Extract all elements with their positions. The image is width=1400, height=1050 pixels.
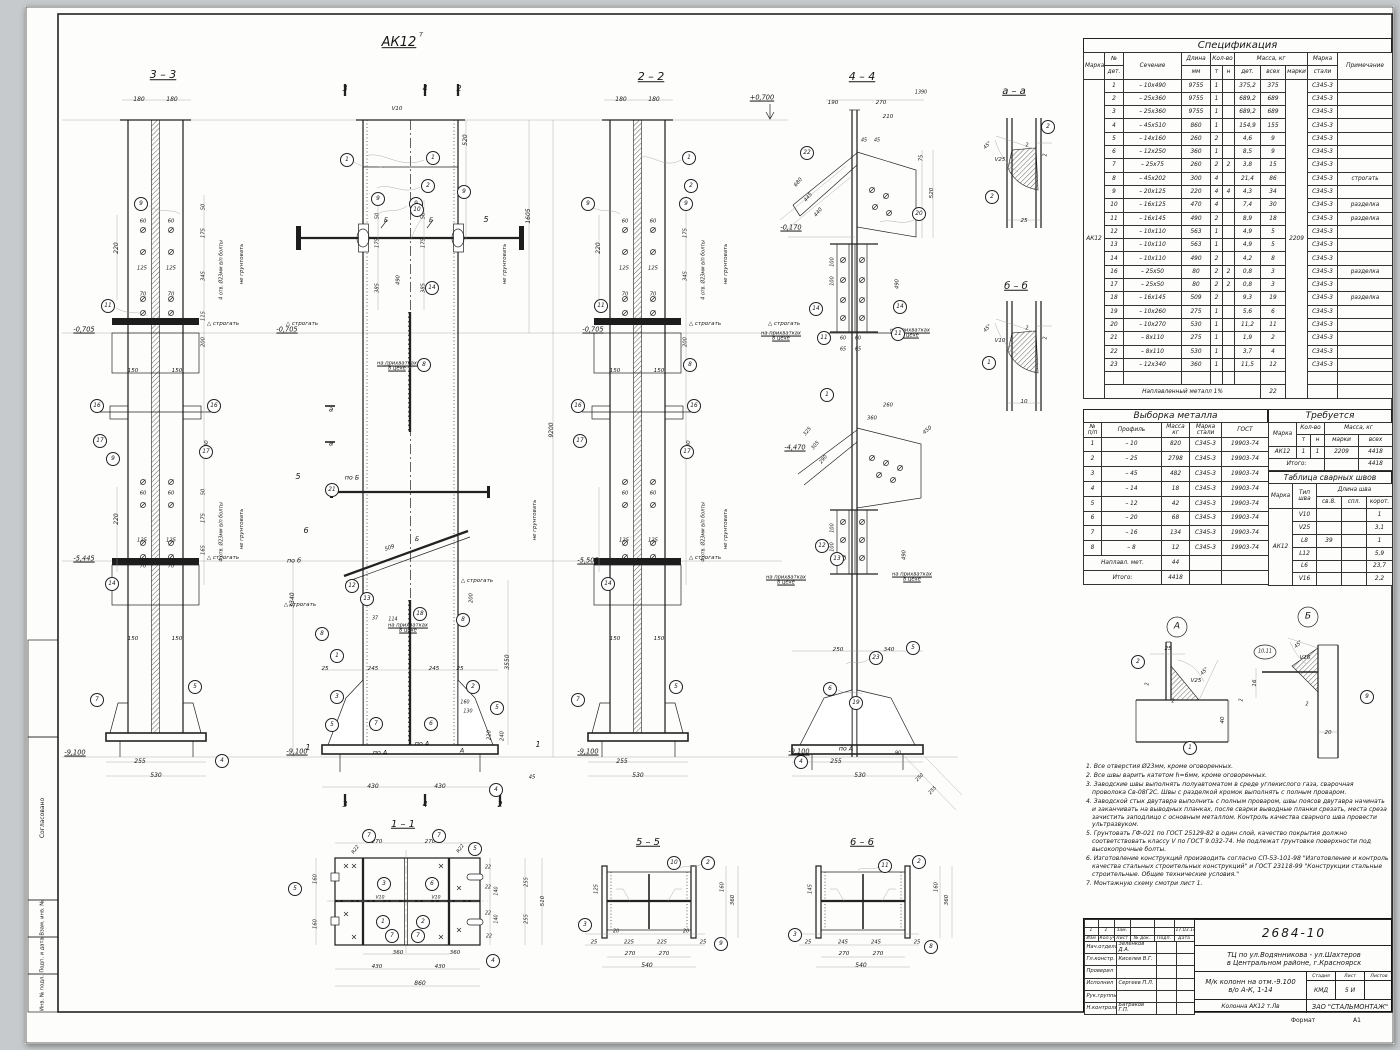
table-cell: – 14 [1102, 481, 1162, 496]
table-cell: Итого: [1269, 458, 1325, 470]
table-cell: 5,9 [1367, 547, 1393, 560]
table-cell: 8,9 [1235, 212, 1261, 225]
table-cell [1342, 534, 1367, 547]
table-cell [1325, 458, 1359, 470]
table-cell: 3,8 [1235, 159, 1261, 172]
table-cell: С345-3 [1308, 345, 1338, 358]
table-cell [1223, 92, 1235, 105]
table-cell: 2 [1211, 132, 1223, 145]
table-cell: 2 [1223, 265, 1235, 278]
object-name: ТЦ по ул.Водянникова - ул.Шахтеров в Цен… [1194, 945, 1393, 971]
table-cell: Гл.констр. [1084, 954, 1116, 966]
table-cell: 34 [1261, 185, 1286, 198]
table-cell: – 25х50 [1124, 265, 1182, 278]
sheet-title: М/к колонн на отм.-9.100 в/о А-К, 1-14 [1194, 971, 1306, 999]
table-cell: разделка [1338, 292, 1393, 305]
table-cell: 300 [1182, 172, 1211, 185]
table-cell [1342, 522, 1367, 535]
table-cell: 22 [1105, 345, 1124, 358]
table-cell: – 10 [1102, 437, 1162, 452]
metal-selection-block: Выборка металла № п/пПрофильМасса кгМарк… [1083, 409, 1268, 586]
table-cell: 860 [1182, 119, 1211, 132]
table-cell: Нач.отдела [1084, 941, 1116, 953]
table-cell: 4 [1105, 119, 1124, 132]
table-cell: – 25 [1102, 452, 1162, 467]
table-cell: 2209 [1286, 79, 1308, 398]
shvov-table-title: Таблица сварных швов [1268, 471, 1392, 483]
table-cell: 6 [1105, 146, 1124, 159]
table-cell: 4 [1211, 185, 1223, 198]
table-cell: Длина [1182, 53, 1211, 66]
weld-table: МаркаТип шваДлина швасв.8.спл.корот.АК12… [1268, 483, 1392, 586]
table-cell [1098, 919, 1114, 927]
table-cell [1223, 146, 1235, 159]
table-cell [1182, 372, 1211, 385]
table-cell: – 45 [1102, 467, 1162, 482]
table-cell: 18 [1162, 481, 1190, 496]
table-cell [1222, 555, 1269, 570]
table-cell: С345-3 [1308, 212, 1338, 225]
table-cell: 1 [1211, 92, 1223, 105]
table-cell: Масса, кг [1235, 53, 1308, 66]
table-cell: 20 [1105, 318, 1124, 331]
table-cell: 2 [1211, 159, 1223, 172]
table-cell [1342, 547, 1367, 560]
table-cell: строгать [1338, 172, 1393, 185]
table-cell: 39 [1317, 534, 1342, 547]
table-cell: 19 [1105, 305, 1124, 318]
table-cell: С345-3 [1190, 452, 1222, 467]
table-cell [1223, 239, 1235, 252]
table-cell: 17 [1105, 279, 1124, 292]
table-cell: С345-3 [1308, 305, 1338, 318]
table-cell: – 16х145 [1124, 212, 1182, 225]
table-cell: 260 [1182, 132, 1211, 145]
table-cell: – 8х110 [1124, 345, 1182, 358]
changes-table: 11зам.17.03.14ИзмКол.учЛист№ док.Подп.Да… [1084, 919, 1195, 944]
doc-number: 2684-10 [1194, 919, 1393, 945]
table-cell [1176, 954, 1194, 966]
table-cell: 2 [1261, 332, 1286, 345]
table-cell: – 10х270 [1124, 318, 1182, 331]
table-cell: 9755 [1182, 79, 1211, 92]
table-cell: 1 [1367, 509, 1393, 522]
table-cell [1338, 305, 1393, 318]
table-cell: – 16х125 [1124, 199, 1182, 212]
table-cell [1223, 358, 1235, 371]
table-cell: С345-3 [1308, 92, 1338, 105]
table-cell: 19903-74 [1222, 496, 1269, 511]
table-cell: 490 [1182, 252, 1211, 265]
table-cell: 1 [1211, 239, 1223, 252]
table-cell: дет. [1235, 66, 1261, 79]
note-line: 1. Все отверстия Ø23мм, кроме оговоренны… [1086, 763, 1389, 771]
table-cell: всех [1359, 434, 1393, 446]
table-cell: марки [1286, 66, 1308, 79]
table-cell: – 16 [1102, 526, 1162, 541]
signatures-table: Нач.отделаЗеленков Д.А.Гл.констр.Киселев… [1084, 941, 1195, 1015]
table-cell: – 8х110 [1124, 332, 1182, 345]
table-cell: АК12 [1269, 509, 1293, 586]
table-cell: 1 [1311, 446, 1325, 458]
table-cell: 275 [1182, 332, 1211, 345]
table-cell [1317, 509, 1342, 522]
table-cell: 155 [1261, 119, 1286, 132]
table-cell: 4,9 [1235, 225, 1261, 238]
table-cell: 12 [1105, 225, 1124, 238]
table-cell: 68 [1162, 511, 1190, 526]
table-cell: 1 [1211, 318, 1223, 331]
table-cell: 4 [1211, 172, 1223, 185]
table-cell: Итого: [1084, 570, 1162, 585]
vybor-table-title: Выборка металла [1083, 409, 1268, 422]
table-cell [1338, 225, 1393, 238]
table-cell: 21,4 [1235, 172, 1261, 185]
table-cell: 4 [1211, 199, 1223, 212]
table-cell: – 12 [1102, 496, 1162, 511]
table-cell [1338, 92, 1393, 105]
sheet-number: 5 И [1335, 980, 1364, 999]
spec-table-title: Спецификация [1083, 38, 1392, 52]
table-cell [1261, 372, 1286, 385]
table-cell: 16 [1105, 265, 1124, 278]
table-cell [1338, 279, 1393, 292]
table-cell: 2,2 [1367, 573, 1393, 586]
table-cell: С345-3 [1308, 292, 1338, 305]
table-cell: V25 [1293, 522, 1317, 535]
table-cell [1338, 185, 1393, 198]
table-cell: марки [1325, 434, 1359, 446]
table-cell: 4 [1084, 481, 1102, 496]
table-cell: Марка [1308, 53, 1338, 66]
table-cell: 3,7 [1235, 345, 1261, 358]
table-cell: 563 [1182, 225, 1211, 238]
table-cell: 1 [1297, 446, 1311, 458]
table-cell: 1 [1105, 79, 1124, 92]
table-cell [1223, 199, 1235, 212]
table-cell [1223, 172, 1235, 185]
stage-label: Стадия [1306, 971, 1335, 980]
table-cell: 5 [1261, 239, 1286, 252]
table-cell: – 25х360 [1124, 92, 1182, 105]
table-cell: Батраков Г.П. [1116, 1002, 1156, 1014]
table-cell: 1,9 [1235, 332, 1261, 345]
table-cell: Зеленков Д.А. [1116, 941, 1156, 953]
table-cell: мм [1182, 66, 1211, 79]
table-cell: 23 [1105, 358, 1124, 371]
table-cell [1156, 966, 1176, 978]
table-cell [1190, 570, 1222, 585]
company-name: ЗАО "СТАЛЬМОНТАЖ" [1306, 999, 1393, 1013]
table-cell [1156, 1002, 1176, 1014]
table-cell: 4 [1223, 185, 1235, 198]
table-cell: – 20 [1102, 511, 1162, 526]
table-cell: 3 [1261, 279, 1286, 292]
table-cell: 44 [1162, 555, 1190, 570]
table-cell: Проверил [1084, 966, 1116, 978]
table-cell: С345-3 [1308, 146, 1338, 159]
table-cell [1342, 573, 1367, 586]
table-cell [1223, 318, 1235, 331]
table-cell: 8 [1084, 541, 1102, 556]
table-cell: С345-3 [1190, 496, 1222, 511]
table-cell: 86 [1261, 172, 1286, 185]
table-cell [1338, 106, 1393, 119]
table-cell: 2798 [1162, 452, 1190, 467]
table-cell: Кол-во [1297, 422, 1325, 434]
table-cell: корот. [1367, 496, 1393, 509]
note-line: 6. Изготовление конструкций производить … [1086, 855, 1389, 879]
table-cell: С345-3 [1308, 159, 1338, 172]
table-cell: – 10х110 [1124, 225, 1182, 238]
table-cell: С345-3 [1190, 437, 1222, 452]
table-cell: 4,9 [1235, 239, 1261, 252]
table-cell: 12 [1162, 541, 1190, 556]
table-cell: 4418 [1359, 446, 1393, 458]
table-cell: всех [1261, 66, 1286, 79]
table-cell: – 45х202 [1124, 172, 1182, 185]
table-cell: 3,1 [1367, 522, 1393, 535]
table-cell [1223, 332, 1235, 345]
table-cell: 820 [1162, 437, 1190, 452]
table-cell: н [1223, 66, 1235, 79]
required-block: Требуется МаркаКол-воМасса, кгтнмаркивсе… [1268, 409, 1392, 586]
table-cell [1338, 79, 1393, 92]
table-cell: 80 [1182, 265, 1211, 278]
table-cell: Профиль [1102, 422, 1162, 437]
table-cell: С345-3 [1308, 199, 1338, 212]
table-cell: С345-3 [1308, 132, 1338, 145]
table-cell: – 45х510 [1124, 119, 1182, 132]
note-line: 4. Заводской стык двутавра выполнить с п… [1086, 798, 1389, 830]
table-cell [1156, 990, 1176, 1002]
table-cell [1338, 239, 1393, 252]
table-cell: 2 [1211, 279, 1223, 292]
table-cell: 19903-74 [1222, 467, 1269, 482]
table-cell: 1 [1211, 358, 1223, 371]
table-cell: – 8 [1102, 541, 1162, 556]
table-cell [1116, 966, 1156, 978]
table-cell: V10 [1293, 509, 1317, 522]
table-cell: С345-3 [1308, 265, 1338, 278]
table-cell: С345-3 [1190, 526, 1222, 541]
table-cell: 19 [1261, 292, 1286, 305]
table-cell [1235, 372, 1261, 385]
table-cell: L12 [1293, 547, 1317, 560]
table-cell: – 14х160 [1124, 132, 1182, 145]
sheets-label: Листов [1364, 971, 1393, 980]
table-cell: 0,8 [1235, 279, 1261, 292]
table-cell: 12 [1261, 358, 1286, 371]
table-cell: 1 [1211, 106, 1223, 119]
table-cell [1130, 919, 1154, 927]
table-cell: Сергеев П.Л. [1116, 978, 1156, 990]
table-cell: – 10х260 [1124, 305, 1182, 318]
table-cell: Масса кг [1162, 422, 1190, 437]
table-cell: 9755 [1182, 92, 1211, 105]
table-cell [1223, 106, 1235, 119]
table-cell [1176, 966, 1194, 978]
table-cell: С345-3 [1308, 185, 1338, 198]
table-cell: 1 [1211, 79, 1223, 92]
table-cell [1176, 941, 1194, 953]
table-cell [1338, 318, 1393, 331]
table-cell [1338, 119, 1393, 132]
table-cell: 482 [1162, 467, 1190, 482]
table-cell [1174, 919, 1194, 927]
table-cell: L6 [1293, 560, 1317, 573]
table-cell: 1 [1367, 534, 1393, 547]
table-cell: 689,2 [1235, 106, 1261, 119]
table-cell: АК12 [1084, 79, 1105, 398]
table-cell: С345-3 [1308, 225, 1338, 238]
table-cell: зам. [1114, 927, 1130, 935]
table-cell: – 25х50 [1124, 279, 1182, 292]
table-cell: Кол-во [1211, 53, 1235, 66]
table-cell: 1 [1211, 345, 1223, 358]
table-cell [1223, 292, 1235, 305]
table-cell [1084, 919, 1098, 927]
table-cell [1176, 990, 1194, 1002]
table-cell: 7,4 [1235, 199, 1261, 212]
table-cell: Тип шва [1293, 483, 1317, 509]
metal-selection-table: № п/пПрофильМасса кгМарка сталиГОСТ1– 10… [1083, 422, 1268, 586]
table-cell: 689 [1261, 92, 1286, 105]
table-cell: 1 [1211, 225, 1223, 238]
table-cell: 80 [1182, 279, 1211, 292]
table-cell: V16 [1293, 573, 1317, 586]
table-cell [1223, 345, 1235, 358]
table-cell: 19903-74 [1222, 541, 1269, 556]
table-cell: – 10х110 [1124, 252, 1182, 265]
table-cell: – 10х490 [1124, 79, 1182, 92]
table-cell: № [1105, 53, 1124, 66]
table-cell: 2 [1211, 265, 1223, 278]
table-cell: 0,8 [1235, 265, 1261, 278]
table-cell: Марка [1269, 483, 1293, 509]
table-cell: Марка [1084, 53, 1105, 80]
table-cell [1130, 927, 1154, 935]
column-label: Колонна АК12 т.Лв [1194, 999, 1306, 1013]
table-cell: Киселев В.Г. [1116, 954, 1156, 966]
table-cell: 689,2 [1235, 92, 1261, 105]
table-cell: 530 [1182, 345, 1211, 358]
table-cell: Н.контроль [1084, 1002, 1116, 1014]
table-cell: 30 [1261, 199, 1286, 212]
table-cell [1338, 332, 1393, 345]
table-cell: 4,2 [1235, 252, 1261, 265]
table-cell: 563 [1182, 239, 1211, 252]
table-cell: 134 [1162, 526, 1190, 541]
table-cell: 260 [1182, 159, 1211, 172]
table-cell: спл. [1342, 496, 1367, 509]
table-cell: 7 [1105, 159, 1124, 172]
table-cell: 689 [1261, 106, 1286, 119]
table-cell: 5 [1105, 132, 1124, 145]
table-cell [1223, 252, 1235, 265]
table-cell [1223, 212, 1235, 225]
table-cell: 19903-74 [1222, 481, 1269, 496]
table-cell: 3 [1261, 265, 1286, 278]
table-cell [1223, 79, 1235, 92]
table-cell: 19903-74 [1222, 437, 1269, 452]
table-cell: – 10х110 [1124, 239, 1182, 252]
table-cell: 4,6 [1235, 132, 1261, 145]
table-cell [1223, 305, 1235, 318]
table-cell: 7 [1084, 526, 1102, 541]
table-cell: 5 [1084, 496, 1102, 511]
table-cell: 22 [1261, 385, 1286, 398]
table-cell: 9755 [1182, 106, 1211, 119]
table-cell [1338, 146, 1393, 159]
table-cell [1222, 570, 1269, 585]
table-cell: С345-3 [1308, 239, 1338, 252]
table-cell: 4418 [1162, 570, 1190, 585]
table-cell: С345-3 [1308, 119, 1338, 132]
table-cell: 8 [1105, 172, 1124, 185]
table-cell: 11,2 [1235, 318, 1261, 331]
table-cell: Рук.группы [1084, 990, 1116, 1002]
table-cell: т [1211, 66, 1223, 79]
table-cell: – 20х125 [1124, 185, 1182, 198]
table-cell: – 25х75 [1124, 159, 1182, 172]
table-cell: 1 [1211, 305, 1223, 318]
table-cell [1223, 132, 1235, 145]
table-cell: 11,5 [1235, 358, 1261, 371]
note-line: 7. Монтажную схему смотри лист 1. [1086, 880, 1389, 888]
table-cell: 15 [1261, 159, 1286, 172]
table-cell: 9 [1105, 185, 1124, 198]
table-cell [1190, 555, 1222, 570]
table-cell: – 12х340 [1124, 358, 1182, 371]
table-cell [1342, 509, 1367, 522]
table-cell: ГОСТ [1222, 422, 1269, 437]
table-cell: С345-3 [1190, 511, 1222, 526]
table-cell: 18 [1105, 292, 1124, 305]
change-rows: 11зам.17.03.14ИзмКол.учЛист№ док.Подп.Да… [1084, 919, 1194, 943]
table-cell [1176, 978, 1194, 990]
general-notes: 1. Все отверстия Ø23мм, кроме оговоренны… [1086, 763, 1389, 889]
table-cell [1223, 119, 1235, 132]
table-cell: 23,7 [1367, 560, 1393, 573]
table-cell: 5,6 [1235, 305, 1261, 318]
table-cell: 2 [1105, 92, 1124, 105]
table-cell [1308, 372, 1338, 385]
table-cell: 530 [1182, 318, 1211, 331]
specification-table: Марка№СечениеДлинаКол-воМасса, кгМаркаПр… [1083, 52, 1392, 399]
table-cell: 375 [1261, 79, 1286, 92]
table-cell [1338, 372, 1393, 385]
required-table: МаркаКол-воМасса, кгтнмаркивсехАК1211220… [1268, 422, 1392, 471]
table-cell: 220 [1182, 185, 1211, 198]
table-cell: – 25х360 [1124, 106, 1182, 119]
sheets-total [1364, 980, 1393, 999]
table-cell: 360 [1182, 146, 1211, 159]
table-cell [1342, 560, 1367, 573]
table-cell: С345-3 [1308, 252, 1338, 265]
table-cell: 8,5 [1235, 146, 1261, 159]
table-cell [1176, 1002, 1194, 1014]
table-cell: т [1297, 434, 1311, 446]
table-cell: разделка [1338, 265, 1393, 278]
table-cell: 375,2 [1235, 79, 1261, 92]
table-cell: 1 [1084, 927, 1098, 935]
table-cell: 9,3 [1235, 292, 1261, 305]
table-cell [1211, 372, 1223, 385]
table-cell: 1 [1211, 119, 1223, 132]
table-cell: – 16х145 [1124, 292, 1182, 305]
table-cell: Исполнил [1084, 978, 1116, 990]
